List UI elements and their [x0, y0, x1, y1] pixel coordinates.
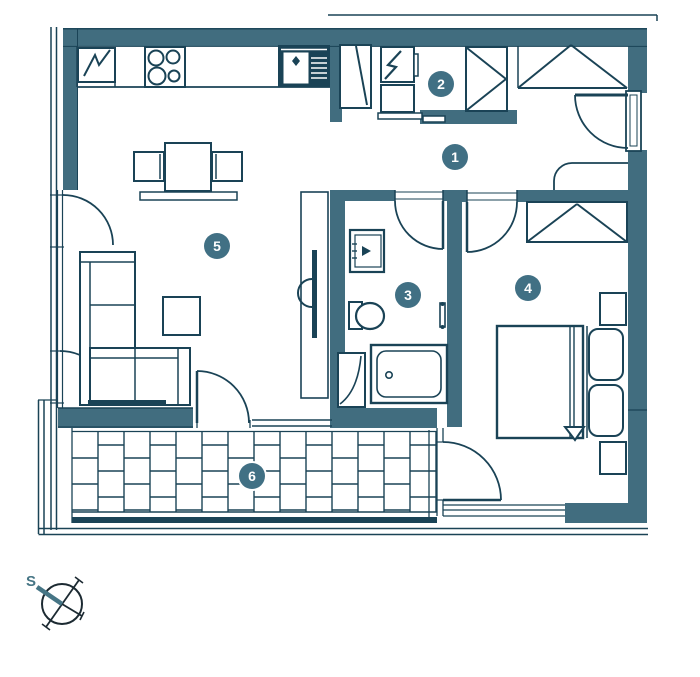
bathroom-door-swing: [395, 201, 443, 249]
dining-set: [134, 143, 242, 200]
dryer: [381, 85, 414, 112]
pillow: [589, 329, 623, 380]
room-marker-3: 3: [393, 280, 423, 310]
room-marker-2: 2: [426, 69, 456, 99]
hallway: [518, 45, 641, 190]
room-marker-4: 4: [513, 273, 543, 303]
room-marker-label: 2: [437, 76, 445, 92]
floor-plan: 123456 S: [0, 0, 700, 677]
window-door-swing: [63, 195, 113, 245]
terrace-door-swing: [197, 371, 249, 423]
sliding-door: [423, 116, 445, 122]
dining-table: [165, 143, 211, 191]
room-marker-6: 6: [237, 461, 267, 491]
floor-plan-page: 123456 S: [0, 0, 700, 677]
room-marker-label: 5: [213, 238, 221, 254]
kitchen-counter: [77, 45, 330, 87]
compass-south-label: S: [26, 573, 36, 590]
entrance-door-swing: [575, 95, 628, 148]
room-marker-label: 4: [524, 280, 532, 296]
nightstand: [600, 442, 626, 474]
sliding-door: [378, 113, 422, 119]
balcony-door-swing: [443, 442, 501, 500]
room-marker-label: 3: [404, 287, 412, 303]
wardrobe: [466, 47, 507, 111]
pillow: [589, 385, 623, 436]
bathtub: [371, 345, 447, 403]
toilet-bowl: [356, 303, 384, 329]
bench: [140, 192, 237, 200]
room-marker-5: 5: [202, 231, 232, 261]
bedroom: [436, 190, 627, 516]
towel-rail: [440, 303, 445, 327]
compass: S: [26, 573, 84, 630]
hall-wardrobe: [571, 45, 627, 88]
room-marker-label: 6: [248, 468, 256, 484]
room-marker-label: 1: [451, 149, 459, 165]
nightstand: [600, 293, 626, 325]
balcony-railing: [72, 517, 437, 523]
bedroom-wardrobe: [527, 202, 627, 242]
hall-rail: [554, 163, 628, 190]
bathroom: [338, 190, 447, 407]
coffee-table: [163, 297, 200, 335]
entrance-door-frame: [626, 91, 641, 151]
tv-unit: [298, 192, 328, 398]
bedroom-door-swing: [467, 202, 517, 252]
room-marker-1: 1: [440, 142, 470, 172]
kitchen-appliance: [78, 48, 115, 82]
